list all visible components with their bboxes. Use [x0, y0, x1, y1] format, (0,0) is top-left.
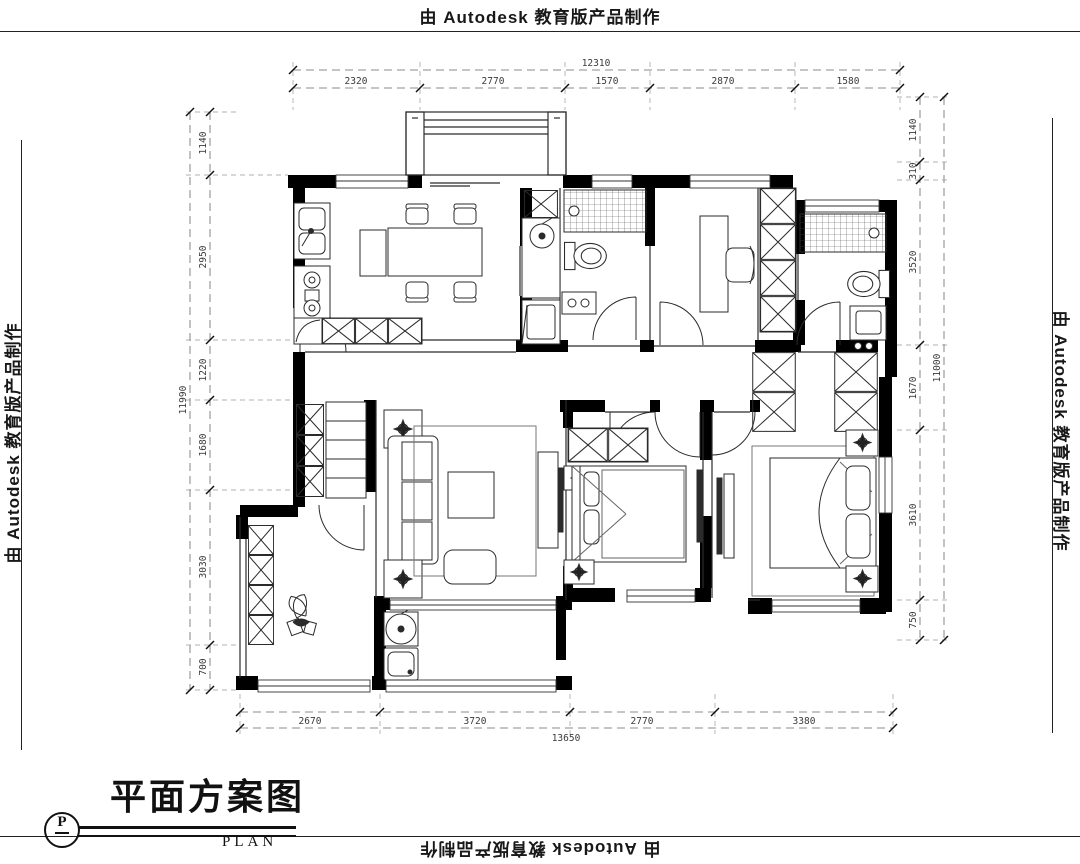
dim-left-0: 1140	[198, 131, 209, 154]
dim-left-5: 700	[198, 658, 209, 675]
floor-plan-drawing: 2320 2770 1570 2870 1580 12310 2670 3720…	[0, 0, 1080, 864]
tv-bed2	[697, 470, 702, 542]
dim-bottom-total: 13650	[552, 733, 581, 744]
plan-symbol-line	[55, 832, 69, 834]
desk-chair	[726, 248, 754, 282]
tv-console-master	[724, 474, 734, 558]
dim-right-3: 1670	[908, 376, 919, 399]
pillow	[846, 466, 870, 510]
balcony-left	[248, 526, 316, 645]
plan-symbol-letter: P	[46, 814, 78, 830]
dim-right-5: 750	[908, 611, 919, 628]
entry-closet	[296, 402, 366, 498]
dim-left-3: 1680	[198, 433, 209, 456]
watermark-left: 由 Autodesk 教育版产品制作	[0, 293, 21, 593]
hall-closets	[753, 353, 878, 432]
dim-top-2: 1570	[596, 76, 619, 87]
dim-top-3: 2870	[712, 76, 735, 87]
title-block: 平面方案图 P PLAN	[0, 760, 340, 860]
dim-right-2: 3520	[908, 250, 919, 273]
kitchen-cabinets	[294, 318, 422, 344]
bed2-wardrobe	[568, 428, 648, 462]
bathroom2	[800, 214, 889, 350]
drawing-subtitle: PLAN	[222, 834, 277, 851]
dim-right-1: 310	[908, 162, 919, 179]
balcony-door	[319, 505, 364, 550]
tv-screen	[559, 468, 563, 532]
living-room	[384, 410, 563, 598]
pillow	[584, 472, 599, 506]
bay-window	[406, 112, 566, 186]
tv-console	[538, 452, 558, 548]
watermark-rule-right	[1052, 118, 1053, 733]
dim-bottom-1: 3720	[464, 716, 487, 727]
dim-left-2: 1220	[198, 358, 209, 381]
drawing-title: 平面方案图	[110, 768, 305, 820]
coffee-table	[448, 472, 494, 518]
dim-bottom-0: 2670	[299, 716, 322, 727]
dim-right-4: 3610	[908, 503, 919, 526]
bedroom3-door	[655, 412, 700, 457]
toilet-1	[565, 242, 607, 269]
dim-left-1: 2950	[198, 245, 209, 268]
dim-right-0: 1140	[908, 118, 919, 141]
watermark-top: 由 Autodesk 教育版产品制作	[0, 3, 1080, 28]
tv-master	[717, 478, 722, 554]
desk	[700, 216, 728, 312]
study-room	[700, 188, 796, 332]
bathroom1	[562, 190, 646, 314]
dim-bottom-3: 3380	[793, 716, 816, 727]
watermark-rule-left	[21, 140, 22, 750]
bath1-door	[593, 297, 636, 340]
kitchen-sink	[294, 203, 330, 259]
dim-left-4: 3030	[198, 555, 209, 578]
master-door	[712, 412, 755, 455]
dim-top-0: 2320	[345, 76, 368, 87]
dim-right-total: 11000	[932, 353, 943, 382]
watermark-rule-top	[0, 31, 1080, 32]
dining-set	[360, 204, 482, 302]
dim-top-1: 2770	[482, 76, 505, 87]
study-wardrobe	[760, 188, 796, 332]
toilet-2	[848, 270, 890, 297]
dim-top-total: 12310	[582, 58, 611, 69]
floor-plan-page: 由 Autodesk 教育版产品制作 由 Autodesk 教育版产品制作 由 …	[0, 0, 1080, 864]
pillow	[846, 514, 870, 558]
dim-top-4: 1580	[837, 76, 860, 87]
study-door	[660, 302, 703, 345]
dim-bottom-2: 2770	[631, 716, 654, 727]
pillow	[584, 510, 599, 544]
bedroom2	[564, 428, 702, 584]
plant	[286, 592, 316, 636]
plan-symbol: P	[44, 812, 80, 848]
balcony-bottom	[384, 610, 418, 680]
ottoman	[444, 550, 496, 584]
master-bedroom	[717, 430, 878, 596]
watermark-right: 由 Autodesk 教育版产品制作	[1053, 281, 1075, 581]
kitchen-stove	[294, 266, 330, 318]
dim-left-total: 11990	[178, 385, 189, 414]
